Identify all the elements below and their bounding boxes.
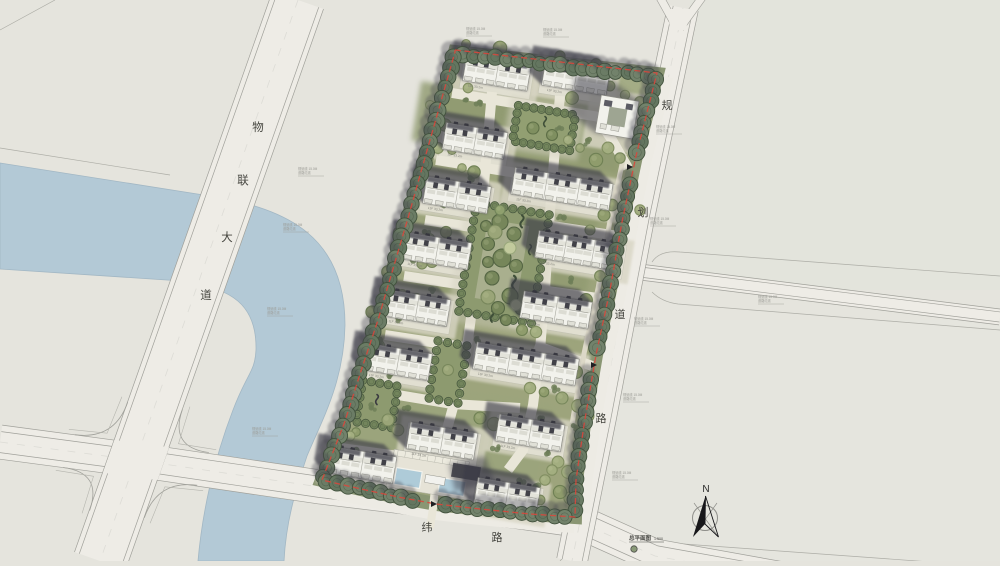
svg-text:道路红线: 道路红线 [543,31,557,36]
svg-text:道路红线: 道路红线 [623,396,637,401]
svg-text:规: 规 [662,98,673,112]
svg-text:纬: 纬 [422,521,433,534]
svg-text:路: 路 [492,531,503,544]
svg-text:1:500: 1:500 [654,537,663,541]
svg-text:道路红线: 道路红线 [634,320,648,325]
svg-text:道路红线: 道路红线 [298,170,312,175]
svg-text:物: 物 [252,120,264,134]
svg-text:路: 路 [596,412,607,425]
svg-text:总平面图: 总平面图 [629,534,652,542]
svg-text:划: 划 [638,206,649,219]
svg-text:道路红线: 道路红线 [267,310,281,315]
svg-text:N: N [702,484,709,495]
svg-text:联: 联 [237,173,249,187]
svg-text:大: 大 [221,230,233,244]
svg-text:道路红线: 道路红线 [758,298,772,303]
svg-text:道路红线: 道路红线 [656,128,670,133]
svg-text:道路红线: 道路红线 [466,30,480,35]
svg-text:道路红线: 道路红线 [650,220,664,225]
svg-text:道路红线: 道路红线 [612,474,626,479]
svg-text:道: 道 [615,307,626,321]
svg-text:道路红线: 道路红线 [283,226,297,231]
svg-text:道: 道 [200,288,212,302]
svg-text:道路红线: 道路红线 [252,430,266,435]
